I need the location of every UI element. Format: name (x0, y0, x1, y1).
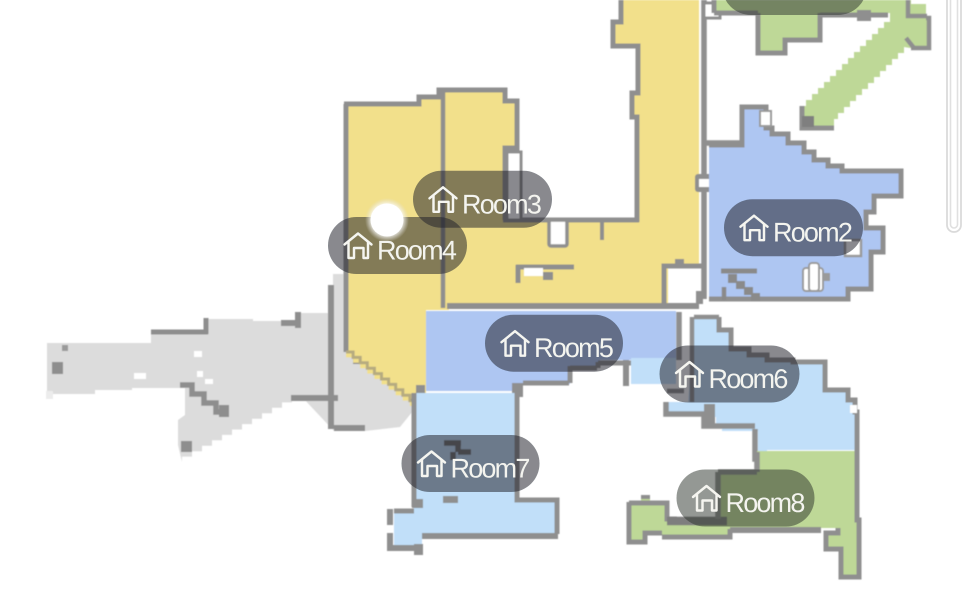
svg-text:Room3: Room3 (462, 189, 541, 219)
svg-text:Room2: Room2 (773, 218, 852, 248)
svg-text:Room6: Room6 (709, 364, 788, 394)
svg-text:Room5: Room5 (534, 333, 613, 363)
svg-text:Room7: Room7 (451, 454, 530, 484)
svg-text:Room8: Room8 (726, 488, 805, 518)
